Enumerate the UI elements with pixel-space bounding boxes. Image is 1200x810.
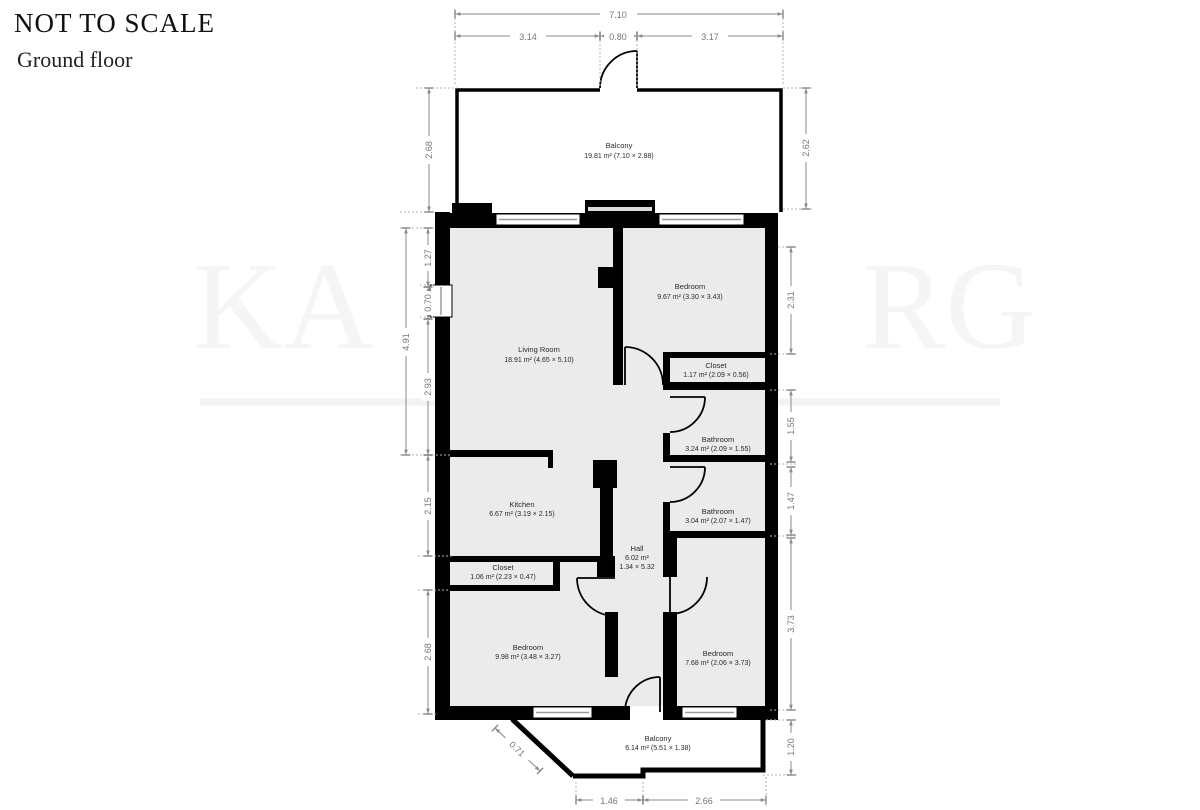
room-bedroom-left-area: 9.98 m² (3.48 × 3.27): [495, 654, 561, 661]
dim-left-2: 2.93: [423, 378, 433, 396]
room-bedroom-right-name: Bedroom: [703, 649, 733, 658]
dim-top-right: 3.17: [701, 32, 719, 42]
room-bedroom-top-area: 9.67 m² (3.30 × 3.43): [657, 294, 723, 301]
floor-plan-page: { "header": { "title": "NOT TO SCALE", "…: [0, 0, 1200, 810]
room-hall-area: 6.02 m²: [625, 555, 649, 562]
dim-left-1: 1.27: [423, 249, 433, 267]
page-title: NOT TO SCALE: [14, 8, 215, 39]
wall-pier: [452, 203, 492, 228]
dim-top-overall: 7.10: [609, 10, 627, 20]
watermark-right: RG: [862, 238, 1036, 376]
room-bedroom-top-name: Bedroom: [675, 282, 705, 291]
dim-right-bedroom: 3.73: [786, 615, 796, 633]
floor-plan-canvas: KA RG: [0, 0, 1200, 810]
room-hall-dims: 1.34 × 5.32: [619, 564, 654, 571]
balcony-doorway-gap: [630, 706, 663, 720]
dim-left-balcony: 2.68: [424, 141, 434, 159]
room-bedroom-left-name: Bedroom: [513, 643, 543, 652]
dim-right-bedroom-top: 2.31: [786, 291, 796, 309]
dim-top-door: 0.80: [609, 32, 627, 42]
room-bathroom-2-name: Bathroom: [702, 507, 735, 516]
room-balcony-bottom-name: Balcony: [645, 734, 672, 743]
room-living-room-area: 18.91 m² (4.65 × 5.10): [504, 357, 573, 364]
dim-top-left: 3.14: [519, 32, 537, 42]
room-closet-top-name: Closet: [705, 361, 727, 370]
dim-right-bathroom-1: 1.55: [786, 417, 796, 435]
window-top-1: [496, 214, 580, 225]
watermark-left: KA: [193, 238, 374, 376]
window-top-2: [659, 214, 744, 225]
room-living-room-name: Living Room: [518, 345, 560, 354]
title-block: NOT TO SCALE Ground floor: [14, 8, 215, 73]
room-balcony-bottom-area: 6.14 m² (5.51 × 1.38): [625, 745, 691, 752]
room-balcony-top-name: Balcony: [606, 141, 633, 150]
room-bathroom-1-area: 3.24 m² (2.09 × 1.55): [685, 446, 751, 453]
dim-right-bathroom-2: 1.47: [786, 492, 796, 510]
floor-label: Ground floor: [17, 47, 215, 73]
dim-bottom-right: 2.66: [695, 796, 713, 806]
dim-left-window: 0.70: [423, 294, 433, 312]
dim-right-balcony-bottom: 1.20: [786, 738, 796, 756]
room-kitchen-name: Kitchen: [509, 500, 534, 509]
dim-left-bedroom: 2.68: [423, 643, 433, 661]
room-closet-bottom-name: Closet: [492, 563, 514, 572]
room-bedroom-right-area: 7.68 m² (2.06 × 3.73): [685, 660, 751, 667]
window-bottom-2: [682, 707, 737, 718]
dim-left-overall: 4.91: [401, 333, 411, 351]
room-closet-top-area: 1.17 m² (2.09 × 0.56): [683, 372, 749, 379]
room-kitchen-area: 6.67 m² (3.19 × 2.15): [489, 511, 555, 518]
wall-pier: [585, 200, 655, 228]
room-closet-bottom-area: 1.06 m² (2.23 × 0.47): [470, 574, 536, 581]
room-hall-name: Hall: [631, 544, 644, 553]
room-balcony-top-area: 19.81 m² (7.10 × 2.88): [584, 153, 653, 160]
room-bathroom-1-name: Bathroom: [702, 435, 735, 444]
balcony-top-walls: [457, 90, 781, 212]
room-bathroom-2-area: 3.04 m² (2.07 × 1.47): [685, 518, 751, 525]
window-bottom-1: [533, 707, 592, 718]
dim-left-kitchen: 2.15: [423, 497, 433, 515]
dim-bottom-left: 1.46: [600, 796, 618, 806]
door-balcony-top: [600, 51, 637, 88]
dim-right-balcony: 2.62: [801, 139, 811, 157]
